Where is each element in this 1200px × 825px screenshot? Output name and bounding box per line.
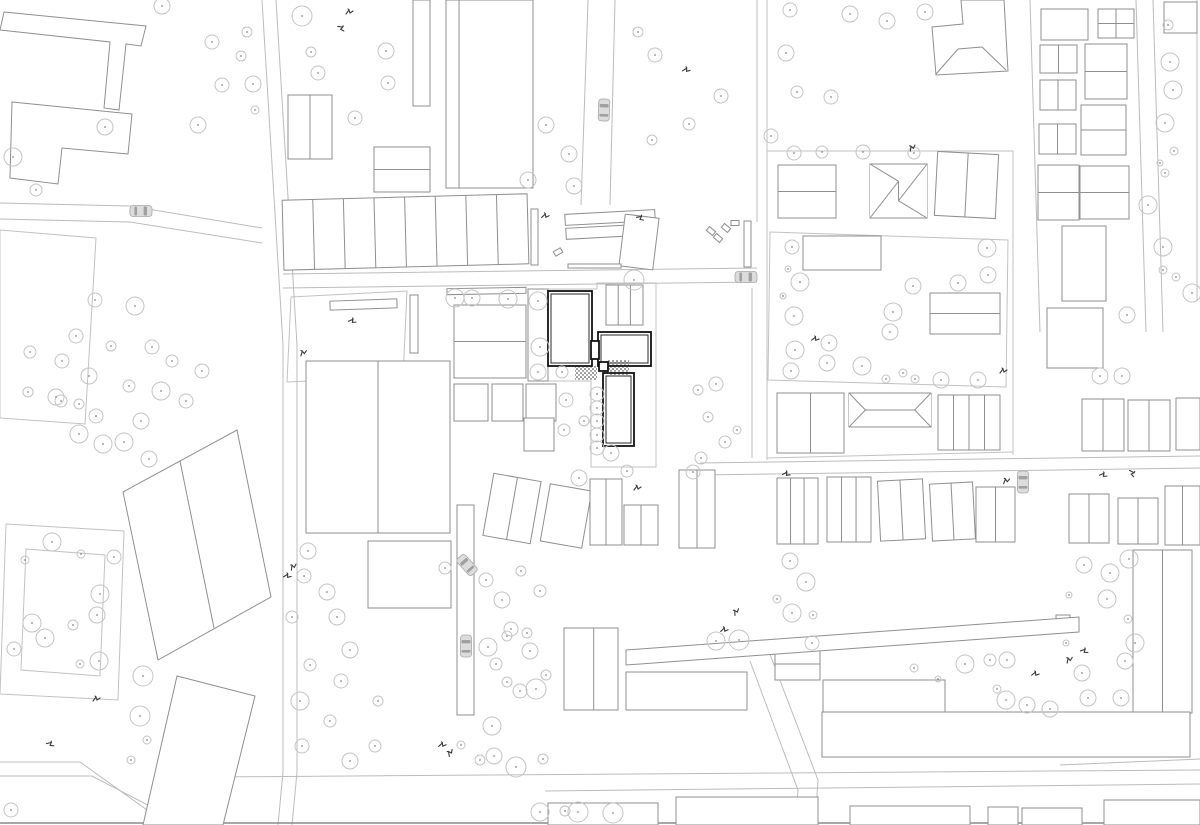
tree-symbol [373, 696, 383, 706]
tree-symbol [785, 240, 799, 254]
context-building [976, 487, 1015, 542]
tree-symbol [89, 409, 103, 423]
context-building [410, 295, 418, 353]
road-line [0, 219, 262, 243]
bird-mark [542, 213, 550, 219]
tree-symbol [490, 658, 502, 670]
tree-symbol [4, 803, 18, 817]
tree-symbol [1074, 665, 1090, 681]
context-building [679, 470, 715, 548]
tree-symbol [304, 659, 316, 671]
tree-symbol [55, 354, 69, 368]
tree-symbol [1019, 697, 1035, 713]
tree-symbol [791, 86, 803, 98]
tree-symbol [154, 0, 170, 14]
tree-symbol [993, 685, 1001, 693]
context-building [626, 617, 1079, 665]
context-building [1038, 165, 1079, 220]
context-building [624, 505, 658, 545]
tree-symbol [311, 66, 325, 80]
context-building [374, 147, 430, 192]
tree-symbol [48, 389, 64, 405]
tree-symbol [506, 757, 526, 777]
tree-symbol [1080, 690, 1096, 706]
context-building [744, 221, 751, 267]
bird-mark [732, 607, 741, 615]
context-building [492, 384, 523, 421]
bird-mark [1130, 470, 1136, 478]
road-line [210, 770, 1200, 777]
project-building [603, 373, 634, 446]
tree-symbol [1114, 368, 1130, 384]
car-symbol [130, 206, 152, 217]
tree-symbol [1076, 557, 1092, 573]
bird-mark [446, 748, 454, 756]
context-building [619, 214, 659, 270]
tree-symbol [292, 6, 312, 26]
car-symbol [1018, 471, 1029, 493]
tree-symbol [782, 553, 798, 569]
tree-symbol [882, 324, 898, 340]
tree-symbol [714, 89, 728, 103]
context-building [143, 676, 255, 825]
context-building [938, 395, 1000, 450]
context-building [282, 194, 529, 270]
context-building [930, 482, 976, 541]
tree-symbol [77, 550, 85, 558]
tree-symbol [1170, 147, 1178, 155]
context-building [1085, 44, 1127, 99]
tree-symbol [999, 652, 1015, 668]
tree-symbol [479, 638, 497, 656]
tree-symbol [329, 609, 345, 625]
tree-symbol [1101, 564, 1119, 582]
tree-symbol [719, 436, 731, 448]
tree-symbol [502, 677, 512, 687]
context-building [1098, 9, 1134, 38]
tree-symbol [1172, 273, 1180, 281]
tree-symbol [522, 643, 538, 659]
tree-symbol [773, 595, 781, 603]
tree-symbol [291, 692, 309, 710]
context-building [1082, 399, 1124, 451]
tree-symbol [917, 4, 933, 20]
tree-symbol [1161, 169, 1169, 177]
project-building-part [591, 341, 599, 359]
tree-symbol [984, 654, 996, 666]
tree-symbol [561, 146, 577, 162]
tree-symbol [797, 573, 815, 591]
bird-mark [1080, 647, 1089, 655]
context-building [368, 541, 451, 608]
context-building [777, 478, 818, 544]
tree-symbol [74, 399, 84, 409]
paving-stipple [608, 360, 629, 375]
tree-symbol [997, 691, 1015, 709]
tree-symbol [648, 48, 662, 62]
context-building [330, 299, 397, 310]
tree-symbol [23, 614, 41, 632]
tree-symbol [1161, 53, 1179, 71]
car-symbol [461, 635, 472, 657]
tree-symbol [783, 3, 797, 17]
tree-symbol [88, 293, 102, 307]
context-building [483, 473, 541, 543]
context-building [932, 0, 1008, 75]
road-line [1136, 0, 1146, 332]
tree-symbol [842, 6, 858, 22]
tree-symbol [978, 239, 996, 257]
tree-symbol [791, 273, 809, 291]
bird-mark [1099, 471, 1108, 479]
road-line [283, 268, 757, 274]
tree-symbol [43, 533, 61, 551]
tree-symbol [1098, 590, 1116, 608]
bird-mark [346, 9, 353, 14]
site-plan [0, 0, 1200, 825]
road-line [292, 772, 297, 825]
bird-mark [682, 66, 690, 73]
tree-symbol [319, 584, 335, 600]
tree-symbol [933, 372, 949, 388]
tree-symbol [911, 375, 919, 383]
tree-symbol [882, 375, 890, 383]
tree-symbol [778, 45, 794, 61]
tree-symbol [538, 117, 554, 133]
tree-symbol [693, 385, 703, 395]
tree-symbol [590, 387, 604, 401]
tree-symbol [306, 47, 316, 57]
bench-object [713, 234, 722, 243]
tree-symbol [1124, 615, 1132, 623]
tree-symbol [899, 369, 907, 377]
tree-symbol [709, 377, 723, 391]
context-building [1022, 808, 1082, 825]
tree-symbol [541, 670, 551, 680]
context-building [827, 477, 871, 542]
context-building [1062, 226, 1106, 301]
context-building [934, 151, 998, 218]
tree-symbol [879, 13, 895, 29]
bird-mark [46, 740, 55, 748]
tree-symbol [821, 335, 837, 351]
context-building [446, 0, 533, 188]
tree-symbol [558, 424, 570, 436]
tree-symbol [152, 382, 170, 400]
tree-symbol [94, 435, 112, 453]
context-building [564, 628, 618, 710]
tree-symbol [1066, 592, 1072, 598]
hip-roof-building [849, 393, 931, 427]
tree-symbol [190, 117, 206, 133]
context-building [606, 285, 643, 325]
context-building [1040, 80, 1076, 110]
tree-symbol [786, 341, 804, 359]
context-building [10, 102, 132, 184]
project-building-part [599, 362, 608, 371]
bird-mark [1032, 670, 1040, 677]
tree-symbol [479, 573, 493, 587]
bird-mark [299, 349, 307, 356]
tree-symbol [334, 674, 348, 688]
tree-symbol [1156, 114, 1174, 132]
context-building [306, 361, 450, 533]
bird-mark [338, 24, 346, 33]
tree-symbol [1092, 368, 1108, 384]
tree-symbol [1117, 653, 1133, 669]
tree-symbol [23, 387, 33, 397]
context-building [778, 165, 836, 218]
tree-symbol [785, 266, 791, 272]
tree-symbol [7, 642, 21, 656]
context-building [1164, 2, 1197, 33]
road-line [545, 784, 1200, 791]
car-symbol [598, 99, 610, 121]
context-building [1081, 105, 1126, 155]
bird-mark [1065, 656, 1073, 663]
tree-symbol [884, 303, 902, 321]
context-building [877, 479, 925, 541]
tree-symbol [123, 380, 135, 392]
tree-symbol [76, 660, 84, 668]
tree-symbol [787, 146, 801, 160]
tree-symbol [534, 585, 546, 597]
tree-symbol [603, 445, 619, 461]
tree-symbol [590, 401, 604, 415]
tree-symbol [1164, 81, 1182, 99]
context-building [457, 505, 474, 715]
context-building [524, 418, 554, 451]
tree-symbol [703, 412, 713, 422]
tree-symbol [133, 413, 149, 429]
tree-symbol [245, 76, 261, 92]
context-building [413, 0, 430, 106]
road-line [262, 0, 283, 772]
bench-object [731, 221, 739, 226]
tree-symbol [457, 741, 465, 749]
tree-symbol [538, 754, 548, 764]
bird-mark [283, 572, 291, 579]
tree-symbol [342, 753, 358, 769]
tree-symbol [1154, 238, 1172, 256]
tree-symbol [215, 78, 229, 92]
context-building [823, 680, 945, 713]
tree-symbol [242, 27, 252, 37]
tree-symbol [126, 297, 144, 315]
bird-mark [439, 742, 447, 748]
context-building [1039, 124, 1076, 154]
tree-symbol [783, 604, 801, 622]
tree-symbol [513, 684, 527, 698]
tree-symbol [647, 135, 657, 145]
context-building [1041, 9, 1088, 40]
tree-symbol [486, 748, 502, 764]
context-building [803, 236, 881, 270]
road-line [278, 772, 283, 825]
bench-object [553, 248, 562, 256]
tree-symbol [145, 340, 159, 354]
tree-symbol [179, 394, 193, 408]
tree-symbol [141, 451, 157, 467]
context-building [1069, 494, 1109, 543]
tree-symbol [785, 307, 803, 325]
tree-symbol [378, 43, 394, 59]
tree-symbol [579, 416, 589, 426]
tree-symbol [251, 106, 259, 114]
hip-roof-building [870, 164, 927, 218]
bird-mark [812, 335, 820, 342]
bird-mark [634, 485, 641, 490]
context-building [1040, 45, 1077, 73]
context-building [1047, 308, 1103, 368]
context-building [531, 209, 538, 265]
tree-symbol [236, 51, 246, 61]
tree-symbol [81, 368, 97, 384]
tree-symbol [556, 366, 568, 378]
road-line [700, 456, 1200, 463]
tree-symbol [526, 679, 546, 699]
tree-symbol [106, 341, 116, 351]
context-building [288, 95, 332, 159]
context-building [850, 806, 970, 825]
tree-symbol [130, 706, 150, 726]
paving-stipple [575, 366, 597, 380]
tree-symbol [950, 275, 966, 291]
bench-object [721, 224, 730, 233]
tree-symbol [590, 428, 604, 442]
tree-symbol [695, 452, 707, 464]
tree-symbol [24, 346, 36, 358]
road-line [610, 0, 615, 205]
tree-symbol [324, 715, 336, 727]
tree-symbol [908, 147, 920, 159]
tree-symbol [816, 146, 828, 158]
tree-symbol [286, 611, 298, 623]
tree-symbol [590, 414, 604, 428]
tree-symbol [819, 355, 835, 371]
bird-mark [348, 317, 357, 325]
context-building [1128, 400, 1170, 451]
tree-symbol [856, 145, 870, 159]
bird-mark [1002, 477, 1010, 484]
tree-symbol [764, 129, 778, 143]
bird-mark [289, 562, 298, 570]
context-building [540, 484, 591, 548]
project-building [548, 291, 592, 366]
tree-symbol [1113, 690, 1129, 706]
tree-symbol [733, 426, 741, 434]
car-symbol [735, 272, 757, 283]
context-building [454, 384, 488, 421]
tree-symbol [143, 736, 151, 744]
tree-symbol [369, 740, 381, 752]
tree-symbol [531, 803, 549, 821]
context-building [590, 479, 622, 545]
tree-symbol [107, 550, 121, 564]
tree-symbol [342, 642, 358, 658]
context-building [676, 797, 818, 825]
tree-symbol [300, 543, 316, 559]
tree-symbol [905, 278, 921, 294]
tree-symbol [522, 628, 532, 638]
tree-symbol [195, 364, 209, 378]
context-building [1080, 166, 1129, 219]
tree-symbol [566, 178, 582, 194]
tree-symbol [783, 363, 799, 379]
context-building [930, 293, 1000, 334]
tree-symbol [980, 267, 996, 283]
tree-symbol [590, 441, 604, 455]
context-building [526, 384, 556, 421]
context-building [1133, 550, 1192, 713]
tree-symbol [36, 629, 54, 647]
tree-symbol [970, 372, 986, 388]
tree-symbol [115, 433, 133, 451]
road-line [581, 0, 588, 205]
bird-mark [721, 627, 729, 633]
tree-symbol [348, 111, 362, 125]
tree-symbol [30, 184, 42, 196]
tree-symbol [559, 393, 573, 407]
tree-symbol [68, 620, 78, 630]
tree-symbol [956, 655, 974, 673]
context-building [1104, 800, 1200, 825]
tree-symbol [90, 652, 108, 670]
tree-symbol [1063, 640, 1069, 646]
context-building [988, 807, 1018, 825]
context-building [454, 305, 526, 378]
tree-symbol [494, 592, 510, 608]
parcel-boundary [21, 549, 105, 676]
tree-symbol [633, 27, 643, 37]
context-building [1176, 398, 1200, 450]
context-building [822, 712, 1190, 757]
tree-symbol [809, 611, 817, 619]
context-building [0, 12, 146, 110]
context-building [1118, 498, 1158, 544]
tree-symbol [127, 756, 135, 764]
tree-symbol [1119, 307, 1135, 323]
context-building [1165, 486, 1200, 545]
context-building [447, 287, 526, 294]
road-line [1060, 759, 1200, 765]
tree-symbol [70, 425, 88, 443]
tree-symbol [205, 35, 219, 49]
tree-symbol [297, 569, 311, 583]
tree-symbol [780, 293, 786, 299]
context-building [626, 672, 747, 710]
tree-symbol [853, 357, 871, 375]
tree-symbol [133, 666, 153, 686]
site-plan-canvas [0, 0, 1200, 825]
tree-symbol [824, 90, 838, 104]
tree-symbol [166, 355, 178, 367]
tree-symbol [69, 329, 83, 343]
tree-symbol [381, 76, 395, 90]
tree-symbol [91, 585, 109, 603]
tree-symbol [475, 755, 485, 765]
bench-object [706, 227, 715, 236]
tree-symbol [483, 717, 501, 735]
tree-symbol [516, 566, 526, 576]
context-building [568, 264, 621, 268]
tree-symbol [683, 118, 695, 130]
road-line [700, 468, 1200, 475]
context-building [777, 393, 844, 453]
road-line [0, 762, 168, 825]
tree-symbol [1159, 266, 1167, 274]
tree-symbol [910, 664, 918, 672]
